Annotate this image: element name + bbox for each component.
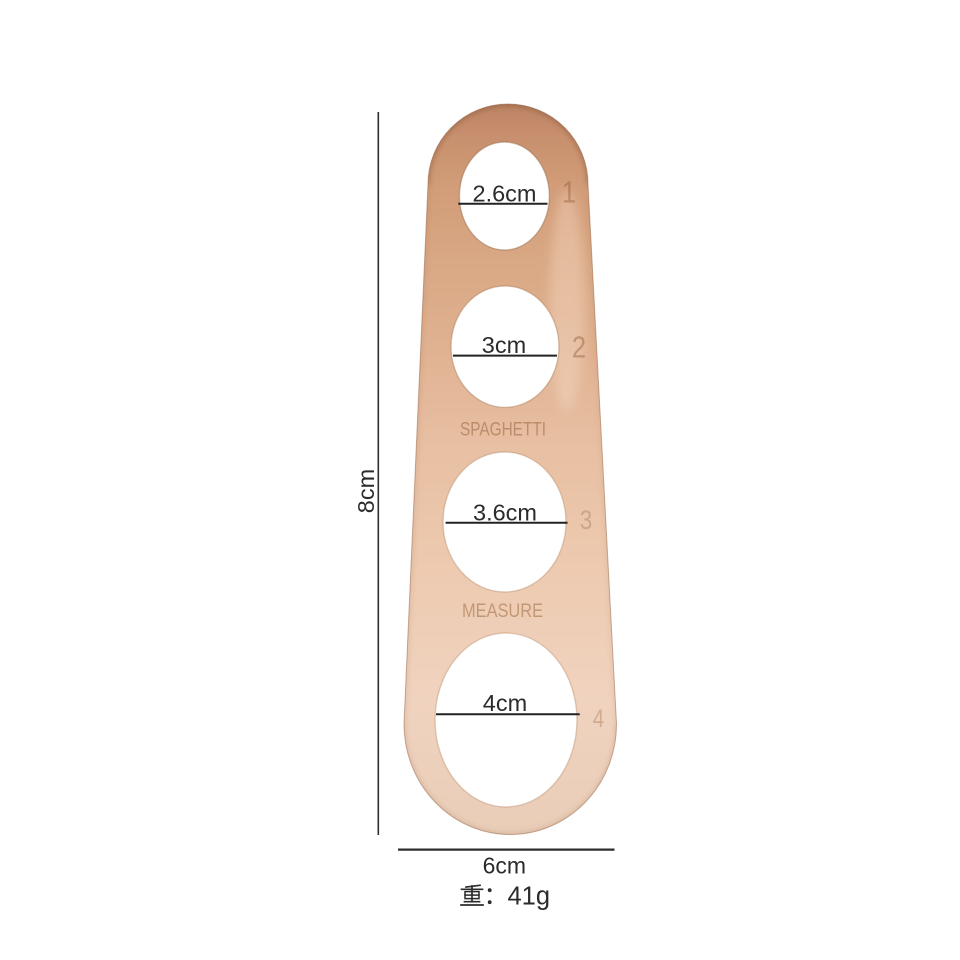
svg-text:6cm: 6cm <box>483 853 526 879</box>
svg-text:41g: 41g <box>508 882 551 910</box>
svg-text:8cm: 8cm <box>353 469 379 513</box>
svg-text:2: 2 <box>572 330 586 365</box>
svg-text:3.6cm: 3.6cm <box>473 499 537 525</box>
svg-text:4cm: 4cm <box>483 690 527 716</box>
svg-text:4: 4 <box>593 704 605 732</box>
svg-text:MEASURE: MEASURE <box>462 601 543 622</box>
svg-text:SPAGHETTI: SPAGHETTI <box>460 420 546 441</box>
svg-text:3cm: 3cm <box>482 332 526 358</box>
svg-text:2.6cm: 2.6cm <box>473 180 537 206</box>
svg-text:3: 3 <box>580 506 592 536</box>
svg-text:1: 1 <box>562 175 576 210</box>
